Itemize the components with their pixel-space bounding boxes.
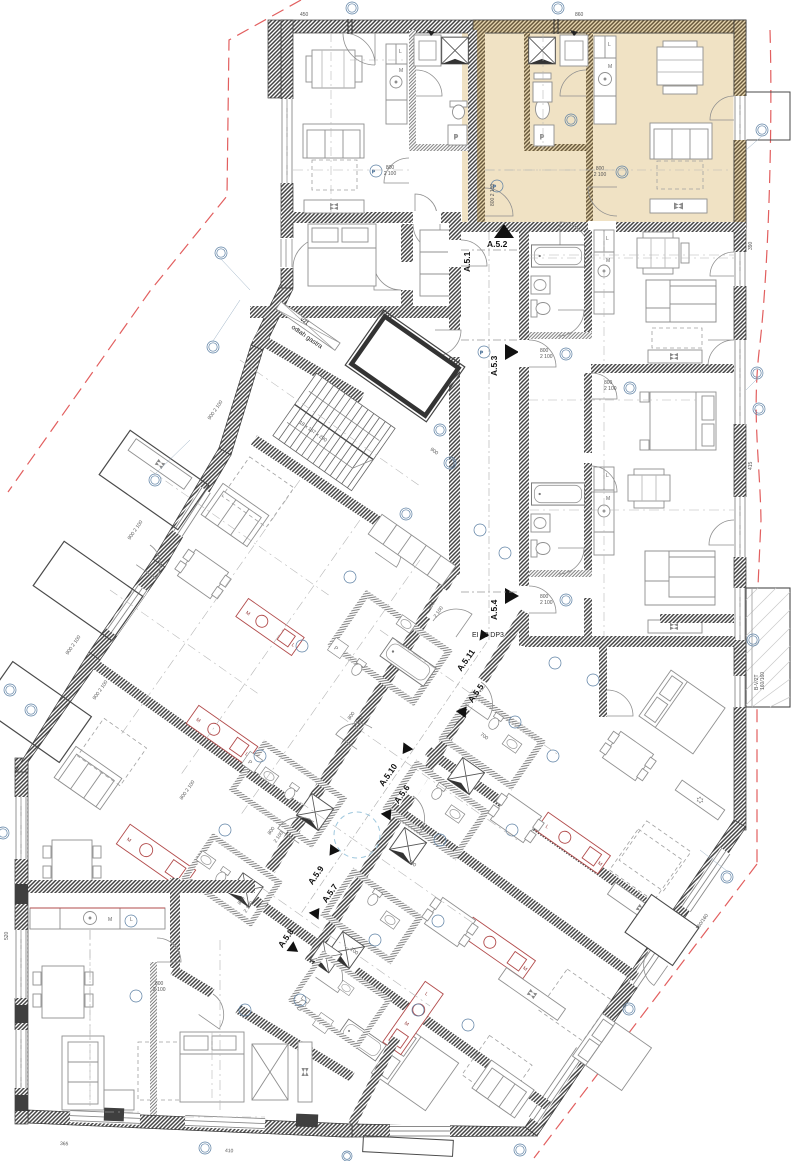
svg-text:M: M [606,496,610,502]
svg-text:M: M [399,68,403,74]
svg-text:410: 410 [225,1148,234,1154]
svg-text:A.5.3: A.5.3 [489,355,499,376]
svg-text:M: M [608,64,612,70]
svg-text:800 2 100: 800 2 100 [490,184,496,206]
svg-text:2 100: 2 100 [153,987,166,993]
svg-text:2 100: 2 100 [604,386,617,392]
svg-text:2 100: 2 100 [594,172,607,178]
svg-text:A.5.4: A.5.4 [489,599,499,620]
svg-text:450: 450 [300,12,309,18]
svg-text:860: 860 [575,12,584,18]
svg-text:M: M [108,917,112,923]
svg-text:L: L [606,236,609,242]
svg-text:2 100: 2 100 [384,171,397,177]
svg-text:365: 365 [60,1141,69,1147]
svg-text:L: L [399,49,402,55]
svg-text:2 100: 2 100 [540,600,553,606]
svg-text:415: 415 [748,461,754,470]
svg-text:390: 390 [748,241,754,250]
svg-text:M: M [606,258,610,264]
svg-text:520: 520 [4,931,10,940]
svg-text:P: P [480,350,483,355]
svg-text:A.5.1: A.5.1 [462,251,472,272]
svg-text:P: P [540,135,544,141]
svg-text:160/160: 160/160 [760,672,766,690]
svg-text:P: P [454,135,458,141]
svg-text:L: L [608,42,611,48]
svg-text:A.5.2: A.5.2 [487,239,508,249]
svg-text:L: L [130,917,133,923]
svg-text:L: L [606,473,609,479]
svg-text:2 100: 2 100 [540,354,553,360]
